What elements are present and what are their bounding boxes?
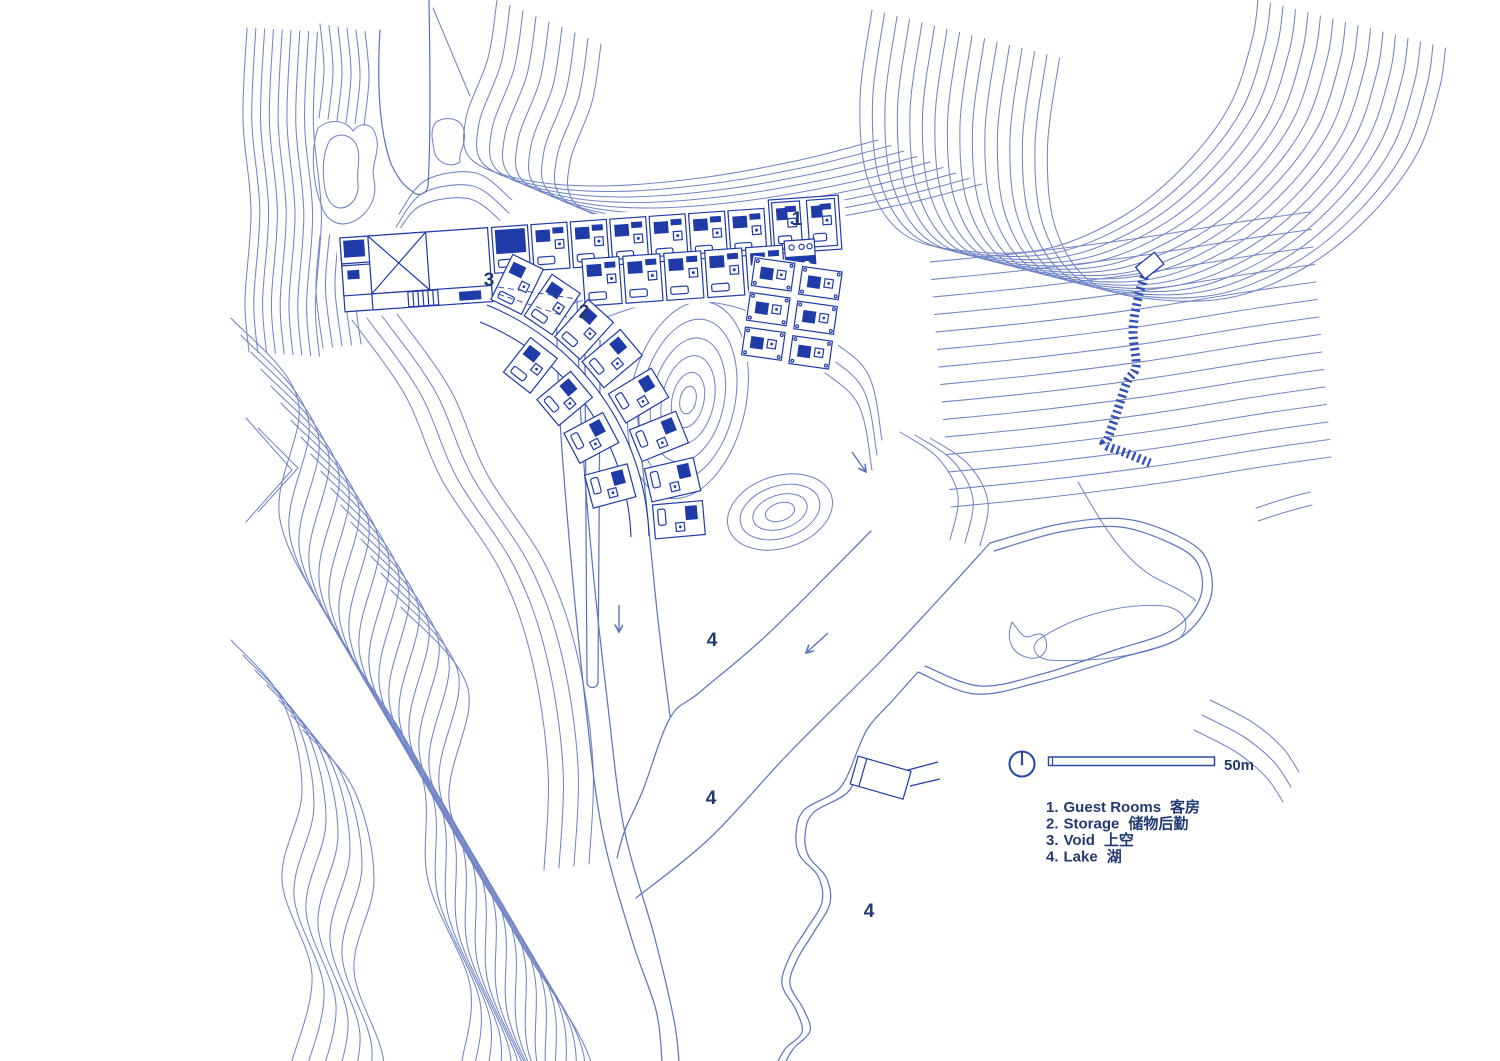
guest-room-unit [794,301,838,334]
legend-item-void: 3.Void上空 [1046,831,1134,849]
guest-room-unit [653,501,706,539]
legend: 1.Guest Rooms客房 2.Storage储物后勤 3.Void上空 4… [1046,798,1200,866]
guest-room-unit [531,222,570,270]
flow-arrow-icon [852,452,866,472]
north-arrow-icon [1010,752,1035,777]
guest-room-unit [623,254,663,303]
stairs-landing [1136,252,1164,279]
site-plan-page: 1 2 3 4 4 4 50m 1.Guest Rooms客房 2.Storag… [0,0,1500,1061]
guest-room-unit [747,292,791,325]
guest-room-unit [664,251,704,300]
label-void: 3 [484,270,495,291]
label-lake-3: 4 [864,901,875,922]
dock [850,756,940,799]
site-plan-drawing: 1 2 3 4 4 4 50m 1.Guest Rooms客房 2.Storag… [0,0,1500,1061]
lake-and-road-outlines [379,0,1213,1061]
guest-room-unit [742,327,786,360]
legend-item-lake: 4.Lake湖 [1046,849,1122,866]
guest-room-buildings [335,195,940,799]
label-storage: 2 [579,302,590,323]
legend-item-guest-rooms: 1.Guest Rooms客房 [1046,798,1200,816]
label-lake-2: 4 [706,788,717,809]
guest-room-unit [644,458,700,502]
guest-room-unit [705,248,745,297]
contour-lines [231,0,1446,1061]
scale-bar: 50m [1049,757,1255,774]
guest-room-unit [789,336,833,369]
scale-label: 50m [1224,757,1254,774]
label-guest-rooms: 1 [792,209,803,230]
flow-arrow-icon [806,633,828,653]
guest-room-unit [582,257,622,306]
label-lake-1: 4 [707,630,718,651]
guest-room-unit [799,266,843,299]
guest-room-wing [739,255,849,373]
service-block [340,228,493,312]
legend-item-storage: 2.Storage储物后勤 [1046,815,1188,833]
guest-room-unit [751,258,795,291]
